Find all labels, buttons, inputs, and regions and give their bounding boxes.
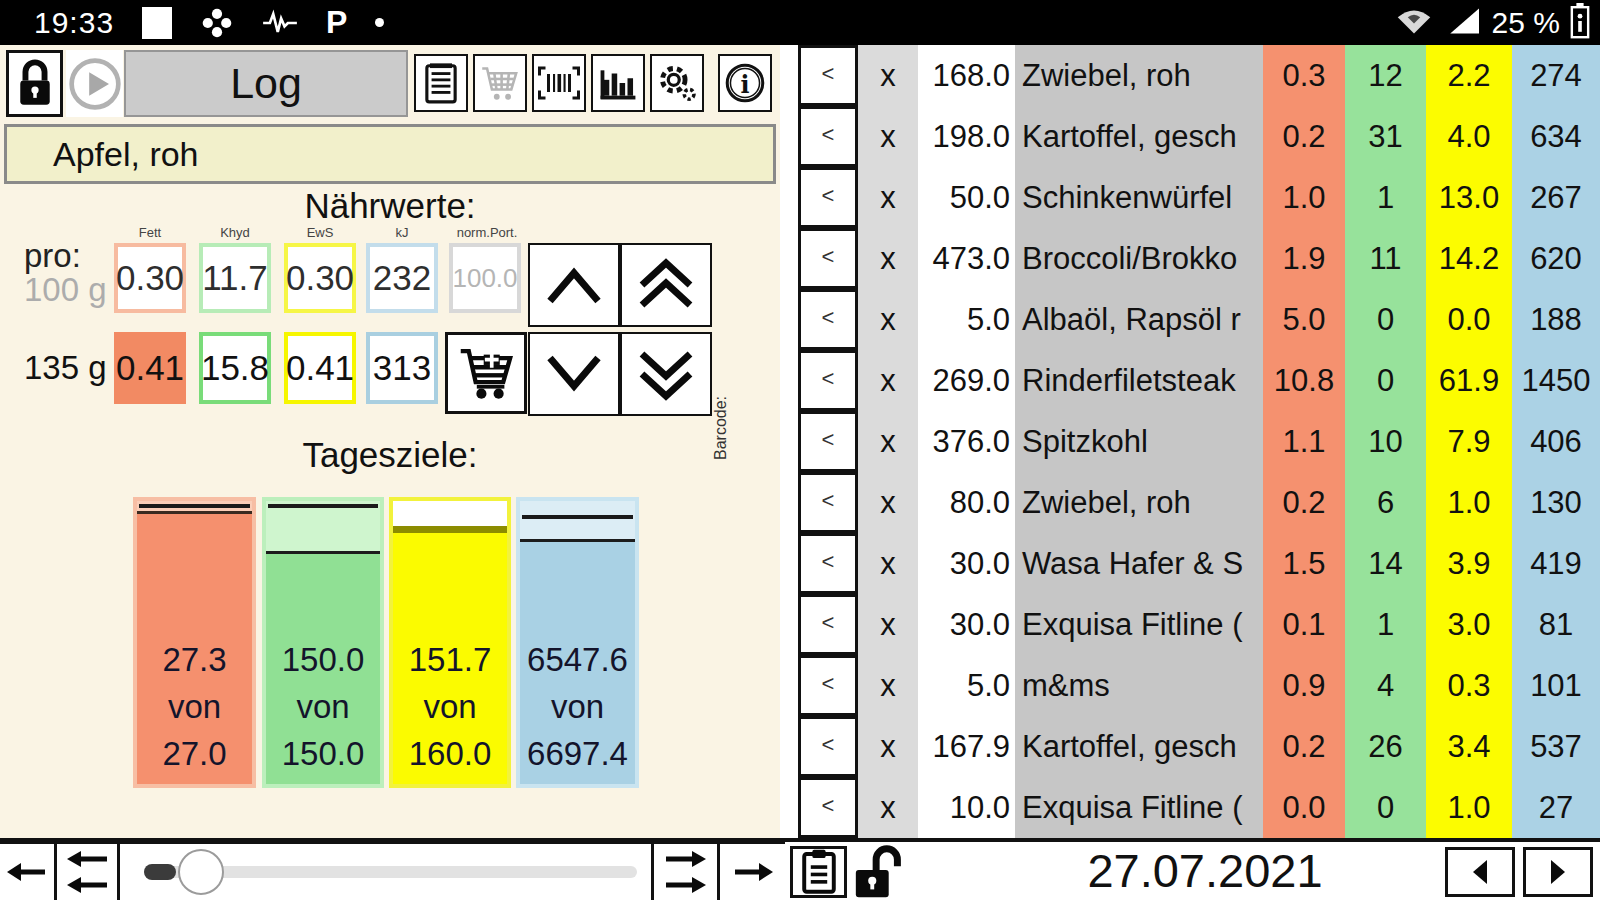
remove-entry-button[interactable]: x bbox=[858, 289, 918, 350]
entry-ews: 3.0 bbox=[1426, 594, 1512, 655]
collapse-row-button[interactable]: < bbox=[798, 594, 858, 655]
page-back-button[interactable] bbox=[57, 844, 120, 900]
entry-name[interactable]: Rinderfiletsteak bbox=[1015, 350, 1263, 411]
entry-fett: 0.1 bbox=[1263, 594, 1345, 655]
col-label-norm-port: norm.Port. bbox=[442, 225, 532, 240]
entry-amount[interactable]: 80.0 bbox=[918, 472, 1015, 533]
entry-fett: 0.2 bbox=[1263, 716, 1345, 777]
norm-portion-field[interactable]: 100.0 bbox=[449, 243, 521, 313]
unlock-button[interactable] bbox=[848, 842, 912, 900]
entry-amount[interactable]: 473.0 bbox=[918, 228, 1015, 289]
clock-label: 19:33 bbox=[34, 6, 114, 40]
col-label-kj: kJ bbox=[357, 225, 447, 240]
slider-thumb[interactable] bbox=[178, 849, 224, 895]
food-name-input[interactable]: Apfel, roh bbox=[4, 124, 776, 184]
tagesziele-heading: Tagesziele: bbox=[0, 435, 780, 475]
entry-fett: 5.0 bbox=[1263, 289, 1345, 350]
entry-ews: 0.3 bbox=[1426, 655, 1512, 716]
p-app-icon: P bbox=[326, 4, 347, 41]
portion-up-button[interactable] bbox=[528, 243, 620, 327]
ews-100g-field[interactable]: 0.30 bbox=[284, 243, 356, 313]
remove-entry-button[interactable]: x bbox=[858, 716, 918, 777]
slider-fill bbox=[144, 864, 176, 880]
entry-ews: 1.0 bbox=[1426, 777, 1512, 838]
entry-fett: 1.1 bbox=[1263, 411, 1345, 472]
entry-ews: 0.0 bbox=[1426, 289, 1512, 350]
entry-fett: 0.0 bbox=[1263, 777, 1345, 838]
barcode-scan-button[interactable] bbox=[532, 54, 586, 112]
entry-ews: 61.9 bbox=[1426, 350, 1512, 411]
remove-entry-button[interactable]: x bbox=[858, 655, 918, 716]
table-row: < x 80.0 Zwiebel, roh 0.2 6 1.0 130 bbox=[780, 472, 1600, 533]
entry-name[interactable]: Albaöl, Rapsöl r bbox=[1015, 289, 1263, 350]
table-row: < x 10.0 Exquisa Fitline ( 0.0 0 1.0 27 bbox=[780, 777, 1600, 838]
entry-khyd: 14 bbox=[1345, 533, 1426, 594]
entry-khyd: 10 bbox=[1345, 411, 1426, 472]
fett-portion-field[interactable]: 0.41 bbox=[114, 332, 186, 404]
collapse-row-button[interactable]: < bbox=[798, 655, 858, 716]
entry-kj: 419 bbox=[1512, 533, 1600, 594]
remove-entry-button[interactable]: x bbox=[858, 228, 918, 289]
clipboard-button[interactable] bbox=[790, 846, 847, 898]
entry-khyd: 26 bbox=[1345, 716, 1426, 777]
entry-name[interactable]: Exquisa Fitline ( bbox=[1015, 594, 1263, 655]
current-date-label: 27.07.2021 bbox=[1025, 842, 1385, 900]
entry-ews: 3.4 bbox=[1426, 716, 1512, 777]
jump-first-day-button[interactable] bbox=[0, 844, 57, 900]
khyd-100g-field[interactable]: 11.7 bbox=[199, 243, 271, 313]
svg-text:i: i bbox=[741, 71, 750, 99]
entry-amount[interactable]: 30.0 bbox=[918, 533, 1015, 594]
battery-percent-label: 25 % bbox=[1492, 6, 1560, 40]
entry-amount[interactable]: 30.0 bbox=[918, 594, 1015, 655]
per-100g-label: 100 g bbox=[24, 271, 107, 309]
goal-bar-ews: 151.7von160.0 bbox=[389, 497, 511, 788]
entry-amount[interactable]: 5.0 bbox=[918, 655, 1015, 716]
day-navigation-bar bbox=[0, 838, 785, 900]
table-row: < x 269.0 Rinderfiletsteak 10.8 0 61.9 1… bbox=[780, 350, 1600, 411]
entry-kj: 27 bbox=[1512, 777, 1600, 838]
entry-ews: 2.2 bbox=[1426, 45, 1512, 106]
table-row: < x 376.0 Spitzkohl 1.1 10 7.9 406 bbox=[780, 411, 1600, 472]
entry-name[interactable]: Spitzkohl bbox=[1015, 411, 1263, 472]
entry-kj: 537 bbox=[1512, 716, 1600, 777]
collapse-row-button[interactable]: < bbox=[798, 472, 858, 533]
entry-kj: 620 bbox=[1512, 228, 1600, 289]
entry-khyd: 1 bbox=[1345, 167, 1426, 228]
entry-kj: 101 bbox=[1512, 655, 1600, 716]
detail-panel: Log i Apfel, roh Nährwerte: Fett Khyd Ew… bbox=[0, 45, 780, 838]
entry-amount[interactable]: 50.0 bbox=[918, 167, 1015, 228]
battery-icon bbox=[1570, 3, 1590, 43]
entry-amount[interactable]: 5.0 bbox=[918, 289, 1015, 350]
entry-fett: 0.2 bbox=[1263, 472, 1345, 533]
goal-bar-text: 151.7von160.0 bbox=[393, 637, 507, 778]
entry-ews: 3.9 bbox=[1426, 533, 1512, 594]
entry-khyd: 0 bbox=[1345, 777, 1426, 838]
entry-ews: 4.0 bbox=[1426, 106, 1512, 167]
entry-amount[interactable]: 269.0 bbox=[918, 350, 1015, 411]
collapse-row-button[interactable]: < bbox=[798, 289, 858, 350]
jump-last-day-button[interactable] bbox=[720, 844, 785, 900]
entry-name[interactable]: Zwiebel, roh bbox=[1015, 45, 1263, 106]
collapse-row-button[interactable]: < bbox=[798, 167, 858, 228]
status-bar: 19:33 P 25 % bbox=[0, 0, 1600, 45]
entry-fett: 0.3 bbox=[1263, 45, 1345, 106]
remove-entry-button[interactable]: x bbox=[858, 106, 918, 167]
goal-bar-fett: 27.3von27.0 bbox=[133, 497, 256, 788]
entry-name[interactable]: Kartoffel, gesch bbox=[1015, 716, 1263, 777]
remove-entry-button[interactable]: x bbox=[858, 594, 918, 655]
entry-khyd: 0 bbox=[1345, 289, 1426, 350]
table-row: < x 5.0 Albaöl, Rapsöl r 5.0 0 0.0 188 bbox=[780, 289, 1600, 350]
log-entries-table: < x 168.0 Zwiebel, roh 0.3 12 2.2 274 < … bbox=[780, 45, 1600, 838]
table-row: < x 198.0 Kartoffel, gesch 0.2 31 4.0 63… bbox=[780, 106, 1600, 167]
table-row: < x 167.9 Kartoffel, gesch 0.2 26 3.4 53… bbox=[780, 716, 1600, 777]
page-title: Log bbox=[124, 50, 408, 117]
remove-entry-button[interactable]: x bbox=[858, 533, 918, 594]
entry-amount[interactable]: 376.0 bbox=[918, 411, 1015, 472]
day-slider[interactable] bbox=[120, 844, 654, 900]
settings-button[interactable] bbox=[650, 54, 704, 112]
entry-fett: 1.9 bbox=[1263, 228, 1345, 289]
add-to-log-cart-button[interactable] bbox=[445, 332, 527, 414]
remove-entry-button[interactable]: x bbox=[858, 45, 918, 106]
entry-name[interactable]: Schinkenwürfel bbox=[1015, 167, 1263, 228]
kj-portion-field[interactable]: 313 bbox=[366, 332, 438, 404]
remove-entry-button[interactable]: x bbox=[858, 411, 918, 472]
table-row: < x 30.0 Exquisa Fitline ( 0.1 1 3.0 81 bbox=[780, 594, 1600, 655]
table-row: < x 50.0 Schinkenwürfel 1.0 1 13.0 267 bbox=[780, 167, 1600, 228]
goal-bar-text: 6547.6von6697.4 bbox=[520, 637, 635, 778]
entry-khyd: 0 bbox=[1345, 350, 1426, 411]
remove-entry-button[interactable]: x bbox=[858, 472, 918, 533]
portion-down-button[interactable] bbox=[528, 332, 620, 416]
goal-bar-text: 27.3von27.0 bbox=[137, 637, 252, 778]
collapse-row-button[interactable]: < bbox=[798, 106, 858, 167]
per-portion-label: 135 g bbox=[24, 349, 107, 387]
goal-line bbox=[268, 504, 378, 508]
entry-amount[interactable]: 10.0 bbox=[918, 777, 1015, 838]
next-day-button[interactable] bbox=[1523, 847, 1593, 897]
entry-kj: 130 bbox=[1512, 472, 1600, 533]
collapse-row-button[interactable]: < bbox=[798, 350, 858, 411]
entry-khyd: 6 bbox=[1345, 472, 1426, 533]
goal-bar-khyd: 150.0von150.0 bbox=[262, 497, 384, 788]
page-forward-button[interactable] bbox=[654, 844, 720, 900]
goal-bar-kj: 6547.6von6697.4 bbox=[516, 497, 639, 788]
table-row: < x 5.0 m&ms 0.9 4 0.3 101 bbox=[780, 655, 1600, 716]
entry-ews: 1.0 bbox=[1426, 472, 1512, 533]
previous-day-button[interactable] bbox=[1445, 847, 1515, 897]
entry-name[interactable]: Kartoffel, gesch bbox=[1015, 106, 1263, 167]
goal-bar-text: 150.0von150.0 bbox=[266, 637, 380, 778]
collapse-row-button[interactable]: < bbox=[798, 411, 858, 472]
naehrwerte-heading: Nährwerte: bbox=[0, 186, 780, 226]
khyd-portion-field[interactable]: 15.8 bbox=[199, 332, 271, 404]
entry-fett: 10.8 bbox=[1263, 350, 1345, 411]
entry-fett: 0.2 bbox=[1263, 106, 1345, 167]
entry-amount[interactable]: 168.0 bbox=[918, 45, 1015, 106]
collapse-row-button[interactable]: < bbox=[798, 228, 858, 289]
entry-kj: 1450 bbox=[1512, 350, 1600, 411]
kj-100g-field[interactable]: 232 bbox=[366, 243, 438, 313]
entry-name[interactable]: Exquisa Fitline ( bbox=[1015, 777, 1263, 838]
entry-ews: 13.0 bbox=[1426, 167, 1512, 228]
portion-fast-up-button[interactable] bbox=[620, 243, 712, 327]
entry-khyd: 4 bbox=[1345, 655, 1426, 716]
col-label-fett: Fett bbox=[105, 225, 195, 240]
statistics-button[interactable] bbox=[591, 54, 645, 112]
remove-entry-button[interactable]: x bbox=[858, 167, 918, 228]
entry-kj: 267 bbox=[1512, 167, 1600, 228]
date-bar: 27.07.2021 bbox=[785, 838, 1600, 900]
col-label-khyd: Khyd bbox=[190, 225, 280, 240]
entry-name[interactable]: Broccoli/Brokko bbox=[1015, 228, 1263, 289]
entry-name[interactable]: Wasa Hafer & S bbox=[1015, 533, 1263, 594]
waveform-icon bbox=[262, 6, 298, 40]
table-row: < x 30.0 Wasa Hafer & S 1.5 14 3.9 419 bbox=[780, 533, 1600, 594]
entry-kj: 274 bbox=[1512, 45, 1600, 106]
entry-name[interactable]: Zwiebel, roh bbox=[1015, 472, 1263, 533]
entry-name[interactable]: m&ms bbox=[1015, 655, 1263, 716]
pinwheel-icon bbox=[200, 6, 234, 40]
cart-button[interactable] bbox=[473, 54, 527, 112]
entry-kj: 81 bbox=[1512, 594, 1600, 655]
entry-khyd: 1 bbox=[1345, 594, 1426, 655]
remove-entry-button[interactable]: x bbox=[858, 777, 918, 838]
portion-fast-down-button[interactable] bbox=[620, 332, 712, 416]
app-screen: 19:33 P 25 % bbox=[0, 0, 1600, 900]
dot-icon bbox=[375, 18, 384, 27]
notification-square-icon bbox=[142, 7, 172, 39]
entry-ews: 14.2 bbox=[1426, 228, 1512, 289]
fett-100g-field[interactable]: 0.30 bbox=[114, 243, 186, 313]
lock-button[interactable] bbox=[6, 50, 63, 117]
entry-fett: 1.5 bbox=[1263, 533, 1345, 594]
remove-entry-button[interactable]: x bbox=[858, 350, 918, 411]
entry-kj: 188 bbox=[1512, 289, 1600, 350]
goal-line bbox=[139, 504, 250, 508]
collapse-row-button[interactable]: < bbox=[798, 533, 858, 594]
entry-amount[interactable]: 198.0 bbox=[918, 106, 1015, 167]
wifi-icon bbox=[1394, 6, 1434, 40]
goal-line bbox=[522, 515, 633, 519]
notes-button[interactable] bbox=[414, 54, 468, 112]
collapse-row-button[interactable]: < bbox=[798, 777, 858, 838]
entry-khyd: 31 bbox=[1345, 106, 1426, 167]
play-button[interactable] bbox=[66, 50, 123, 117]
collapse-row-button[interactable]: < bbox=[798, 716, 858, 777]
entry-fett: 1.0 bbox=[1263, 167, 1345, 228]
table-row: < x 168.0 Zwiebel, roh 0.3 12 2.2 274 bbox=[780, 45, 1600, 106]
ews-portion-field[interactable]: 0.41 bbox=[284, 332, 356, 404]
entry-fett: 0.9 bbox=[1263, 655, 1345, 716]
cell-signal-icon bbox=[1446, 6, 1482, 40]
entry-amount[interactable]: 167.9 bbox=[918, 716, 1015, 777]
entry-kj: 406 bbox=[1512, 411, 1600, 472]
entry-ews: 7.9 bbox=[1426, 411, 1512, 472]
collapse-row-button[interactable]: < bbox=[798, 45, 858, 106]
table-row: < x 473.0 Broccoli/Brokko 1.9 11 14.2 62… bbox=[780, 228, 1600, 289]
pro-label: pro: bbox=[24, 237, 81, 275]
entry-kj: 634 bbox=[1512, 106, 1600, 167]
info-button[interactable]: i bbox=[718, 54, 772, 112]
col-label-ews: EwS bbox=[275, 225, 365, 240]
entry-khyd: 12 bbox=[1345, 45, 1426, 106]
entry-khyd: 11 bbox=[1345, 228, 1426, 289]
